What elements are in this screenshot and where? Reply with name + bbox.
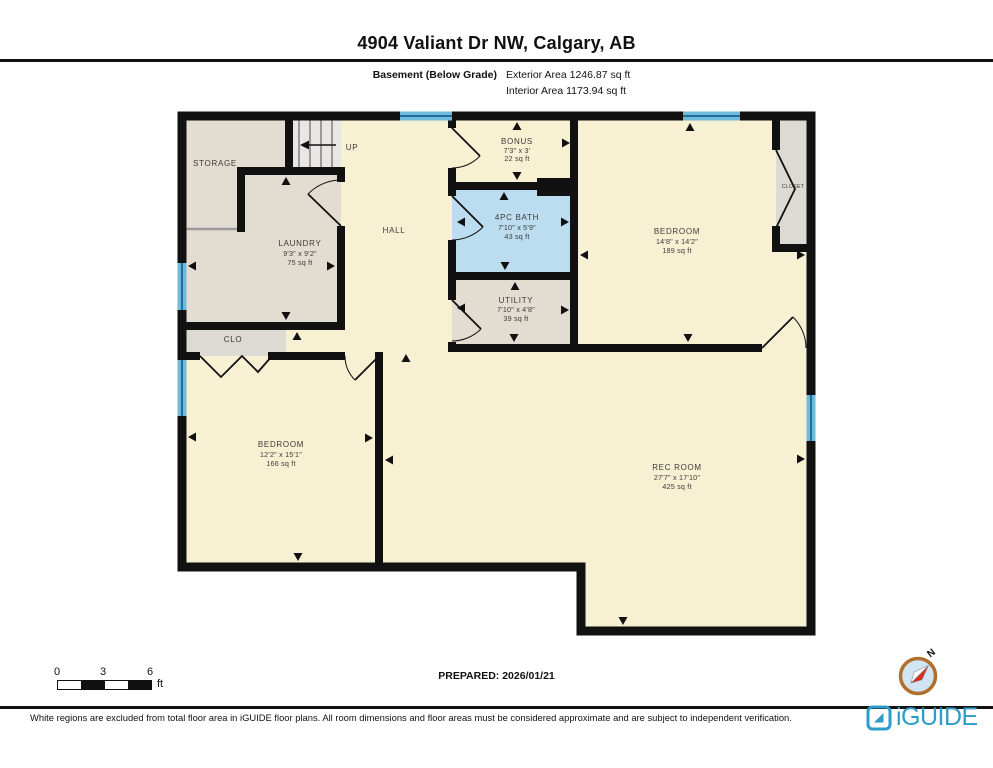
laundry-label: LAUNDRY bbox=[279, 239, 322, 248]
bedroom-right-label: BEDROOM bbox=[654, 227, 700, 236]
bath-dims: 7'10" x 5'9" bbox=[498, 223, 536, 232]
bedroom-left-area: 166 sq ft bbox=[266, 459, 295, 468]
storage-label: STORAGE bbox=[193, 159, 237, 168]
rec-room-label: REC ROOM bbox=[652, 463, 702, 472]
iguide-logo-icon bbox=[866, 705, 892, 731]
utility-label: UTILITY bbox=[499, 296, 534, 305]
bedroom-right-dims: 14'8" x 14'2" bbox=[656, 237, 698, 246]
hall-label: HALL bbox=[383, 226, 406, 235]
bath-label: 4PC BATH bbox=[495, 213, 539, 222]
closet-left-label: CLO bbox=[224, 335, 243, 344]
closet-right-label: CLOSET bbox=[782, 184, 805, 190]
bonus-area: 22 sq ft bbox=[504, 154, 529, 163]
disclaimer-text: White regions are excluded from total fl… bbox=[30, 712, 830, 723]
rec-room-dims: 27'7" x 17'10" bbox=[654, 473, 700, 482]
bonus-label: BONUS bbox=[501, 137, 533, 146]
footer-divider bbox=[0, 706, 993, 709]
stairs-up-label: UP bbox=[346, 143, 359, 152]
stairs-fill bbox=[289, 116, 341, 171]
bath-area: 43 sq ft bbox=[504, 232, 529, 241]
iguide-logo-text: iGUIDE bbox=[896, 703, 978, 732]
laundry-area: 75 sq ft bbox=[287, 258, 312, 267]
floor-plan: STORAGE UP LAUNDRY 9'3" x 9'2" 75 sq ft … bbox=[0, 0, 993, 768]
bedroom-left-label: BEDROOM bbox=[258, 440, 304, 449]
closet-right-fill bbox=[776, 116, 811, 248]
bedroom-right-area: 189 sq ft bbox=[662, 246, 691, 255]
bath-wall-notch bbox=[537, 178, 578, 196]
utility-area: 39 sq ft bbox=[503, 314, 528, 323]
prepared-date: PREPARED: 2026/01/21 bbox=[0, 670, 993, 682]
bedroom-left-dims: 12'2" x 15'1" bbox=[260, 450, 302, 459]
laundry-dims: 9'3" x 9'2" bbox=[283, 249, 317, 258]
utility-dims: 7'10" x 4'8" bbox=[497, 305, 535, 314]
rec-room-area: 425 sq ft bbox=[662, 482, 691, 491]
compass-icon bbox=[893, 651, 943, 701]
iguide-logo: iGUIDE bbox=[866, 703, 978, 732]
